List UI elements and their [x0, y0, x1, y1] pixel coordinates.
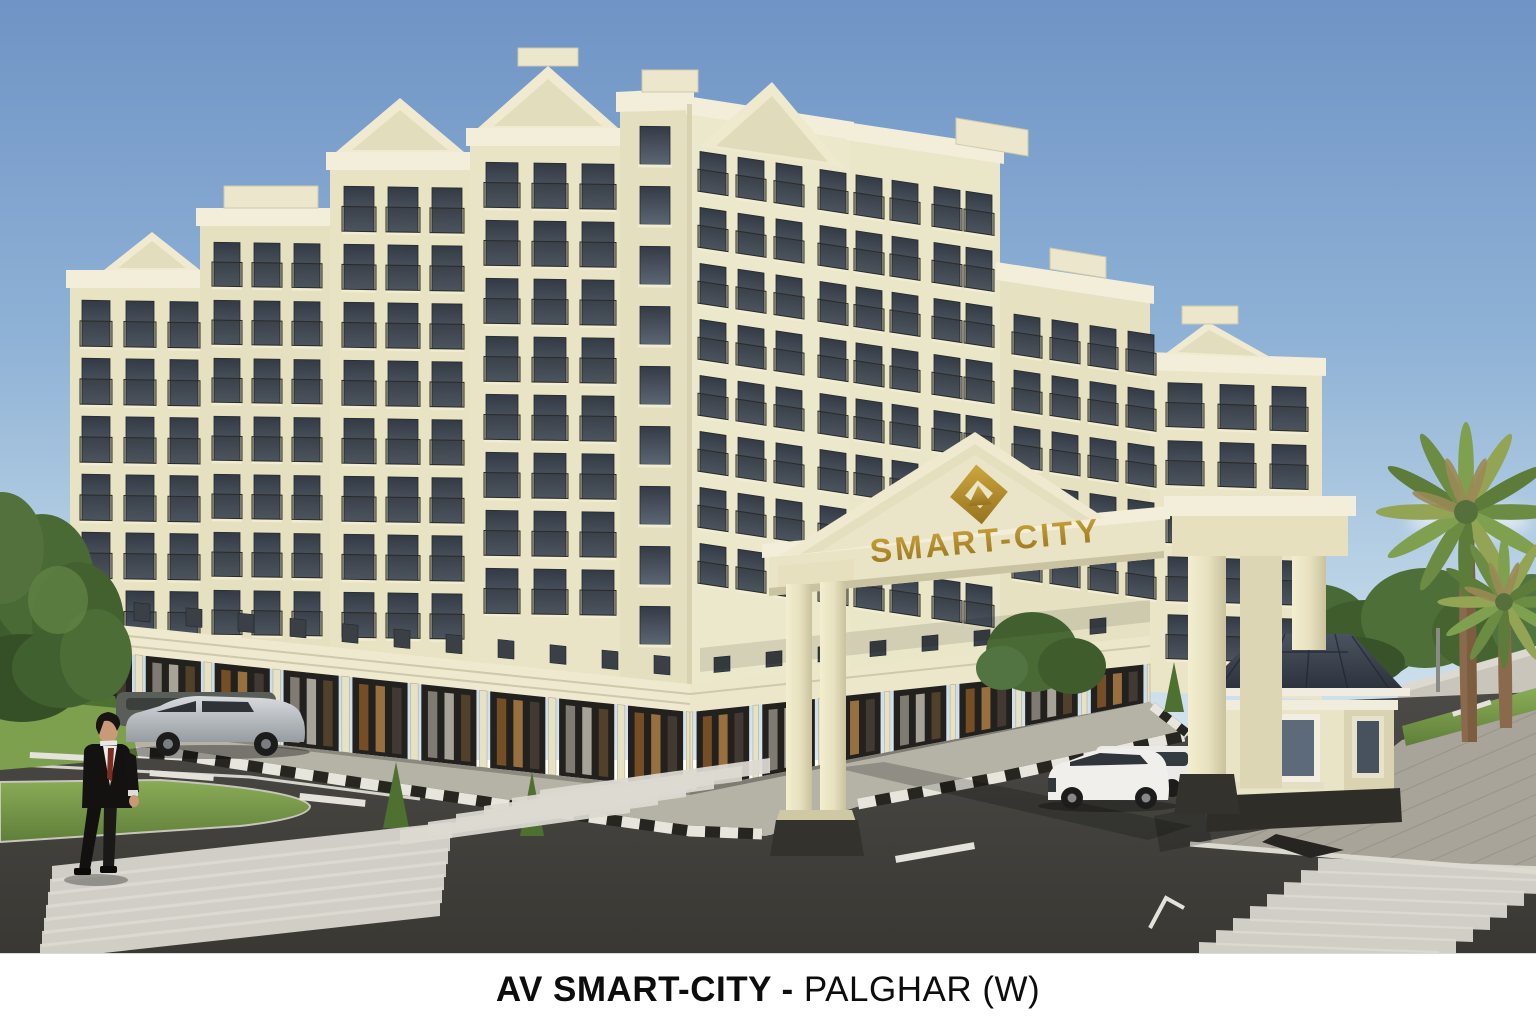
balcony-railing	[430, 556, 464, 581]
shop-pilaster	[342, 676, 349, 753]
balcony-railing	[168, 322, 200, 348]
block-a2-parapet	[224, 186, 318, 208]
gate-pier	[1240, 556, 1282, 788]
balcony-railing	[1012, 332, 1042, 358]
caption-location: PALGHAR (W)	[804, 970, 1040, 1010]
balcony-railing	[80, 495, 112, 521]
balcony-railing	[698, 337, 728, 363]
balcony-railing	[386, 497, 420, 522]
window	[550, 645, 566, 665]
balcony-railing	[1126, 405, 1156, 431]
balcony-railing	[736, 399, 766, 425]
shop-display-art	[866, 699, 875, 753]
parked-vehicles-left	[116, 692, 310, 759]
balcony-railing	[252, 553, 282, 578]
shop-display-art	[635, 712, 644, 781]
balcony-railing	[484, 588, 520, 613]
balcony-railing	[80, 321, 112, 347]
shop-display-art	[428, 691, 437, 758]
balcony-railing	[386, 439, 420, 464]
shop-display-art	[651, 714, 660, 783]
balcony-railing	[342, 322, 376, 347]
right-capital-top	[1164, 496, 1356, 516]
balcony-railing	[580, 358, 616, 383]
balcony-railing	[386, 555, 420, 580]
balcony-railing	[532, 589, 568, 614]
balcony-railing	[698, 505, 728, 531]
window	[640, 426, 670, 464]
balcony-railing	[854, 361, 884, 387]
balcony-railing	[580, 532, 616, 557]
balcony-railing	[342, 496, 376, 521]
balcony-railing	[1218, 462, 1256, 488]
caption-project-name: AV SMART-CITY -	[496, 970, 804, 1010]
balcony-railing	[818, 187, 848, 213]
caption-bar: AV SMART-CITY - PALGHAR (W)	[0, 953, 1536, 1024]
balcony-railing	[1270, 464, 1308, 490]
window	[640, 306, 670, 344]
balcony-railing	[818, 411, 848, 437]
shop-pilaster	[617, 705, 624, 783]
window-grid-a2	[212, 242, 322, 639]
shop-display-art	[307, 678, 316, 745]
balcony-railing	[818, 355, 848, 381]
column-plinth	[1174, 774, 1240, 814]
balcony-railing	[580, 590, 616, 615]
balcony-railing	[484, 182, 520, 207]
balcony-railing	[386, 265, 420, 290]
balcony-railing	[890, 254, 920, 280]
balcony-railing	[430, 324, 464, 349]
balcony-railing	[698, 449, 728, 475]
block-b2-cap	[518, 48, 578, 66]
shop-pilaster	[480, 690, 487, 767]
balcony-railing	[212, 610, 242, 635]
window	[640, 366, 670, 404]
balcony-railing	[1166, 460, 1204, 486]
cabin-side-window-glass	[1357, 721, 1379, 773]
hand	[129, 795, 139, 807]
balcony-railing	[342, 206, 376, 231]
balcony-railing	[430, 382, 464, 407]
window-sill	[638, 524, 672, 527]
roof-fascia	[1196, 688, 1410, 696]
balcony-railing	[736, 455, 766, 481]
balcony-railing	[532, 415, 568, 440]
gate-column-rear	[1292, 556, 1326, 650]
balcony-railing	[736, 567, 766, 593]
balcony-railing	[292, 437, 322, 462]
wheel-hub	[1142, 794, 1151, 803]
balcony-railing	[698, 281, 728, 307]
balcony-railing	[124, 554, 156, 580]
balcony-railing	[580, 184, 616, 209]
car-shadow	[1038, 800, 1178, 812]
balcony-railing	[774, 181, 804, 207]
balcony-railing	[212, 262, 242, 287]
balcony-railing	[774, 405, 804, 431]
balcony-railing	[932, 204, 962, 230]
shop-display-art	[376, 686, 385, 753]
balcony-railing	[484, 298, 520, 323]
balcony-railing	[854, 249, 884, 275]
balcony-railing	[1088, 567, 1118, 593]
balcony-railing	[252, 495, 282, 520]
window	[640, 126, 670, 164]
block-a2-cornice	[196, 208, 334, 226]
balcony-railing	[1050, 449, 1080, 475]
rendering-canvas: SMART-CITY	[0, 0, 1536, 953]
balcony-railing	[168, 554, 200, 580]
balcony-railing	[1166, 402, 1204, 428]
window-sill	[638, 644, 672, 647]
shop-display-art	[982, 687, 991, 731]
balcony-railing	[342, 438, 376, 463]
shop-display-art	[359, 684, 368, 751]
balcony-railing	[484, 356, 520, 381]
balcony-railing	[212, 378, 242, 403]
balcony-railing	[342, 554, 376, 579]
balcony-railing	[774, 237, 804, 263]
balcony-railing	[854, 417, 884, 443]
balcony-railing	[580, 474, 616, 499]
shop-display-art	[1129, 671, 1138, 702]
balcony-railing	[1270, 406, 1308, 432]
balcony-railing	[430, 440, 464, 465]
balcony-railing	[1050, 393, 1080, 419]
pedestrian-shadow	[64, 874, 128, 886]
balcony-railing	[964, 265, 994, 291]
balcony-railing	[532, 183, 568, 208]
shop-display-art	[850, 700, 859, 755]
window	[238, 613, 254, 633]
balcony-railing	[168, 438, 200, 464]
corner-edge	[687, 104, 692, 708]
window-sill	[638, 404, 672, 407]
shoe	[74, 868, 91, 875]
balcony-railing	[532, 531, 568, 556]
corner-pier-cap	[642, 70, 698, 92]
wheel-hub	[1068, 794, 1077, 803]
balcony-railing	[212, 320, 242, 345]
balcony-railing	[124, 322, 156, 348]
balcony-railing	[124, 496, 156, 522]
balcony-railing	[818, 243, 848, 269]
balcony-railing	[1012, 388, 1042, 414]
balcony-railing	[698, 225, 728, 251]
balcony-railing	[532, 473, 568, 498]
balcony-railing	[292, 321, 322, 346]
block-a1-cornice	[66, 270, 204, 288]
balcony-railing	[292, 263, 322, 288]
gate-column-right	[1188, 556, 1226, 780]
shop-pilaster	[1147, 664, 1150, 703]
balcony-railing	[698, 393, 728, 419]
shop-display-art	[566, 705, 575, 773]
shoe	[100, 866, 117, 873]
window	[654, 655, 670, 675]
balcony-railing	[890, 310, 920, 336]
balcony-railing	[252, 321, 282, 346]
gate-column-left-b	[820, 582, 846, 818]
car-silver-window	[202, 701, 254, 712]
shop-display-art	[444, 693, 453, 760]
shop-display-art	[323, 680, 332, 747]
balcony-railing	[698, 169, 728, 195]
balcony-railing	[484, 240, 520, 265]
balcony-railing	[430, 266, 464, 291]
shop-display-art	[916, 694, 925, 743]
balcony-railing	[212, 436, 242, 461]
window	[290, 618, 306, 638]
shop-pilaster	[411, 683, 418, 760]
balcony-railing	[386, 323, 420, 348]
palm-crown-center	[1454, 500, 1478, 524]
shop-pilaster	[884, 691, 890, 753]
balcony-railing	[342, 380, 376, 405]
window-sill	[638, 584, 672, 587]
balcony-railing	[854, 193, 884, 219]
balcony-railing	[1088, 399, 1118, 425]
shop-display-art	[461, 694, 470, 762]
balcony-railing	[292, 379, 322, 404]
shop-display-art	[530, 701, 539, 769]
balcony-railing	[964, 321, 994, 347]
balcony-railing	[532, 357, 568, 382]
window	[498, 639, 514, 659]
window	[602, 650, 618, 670]
window	[134, 603, 150, 623]
light-pole	[1436, 628, 1440, 692]
cuff	[128, 790, 138, 796]
balcony-railing	[386, 381, 420, 406]
car-shadow	[120, 745, 310, 759]
balcony-railing	[1218, 404, 1256, 430]
balcony-railing	[168, 496, 200, 522]
balcony-railing	[932, 596, 962, 622]
balcony-railing	[890, 590, 920, 616]
balcony-railing	[168, 380, 200, 406]
window	[640, 186, 670, 224]
window-sill	[638, 224, 672, 227]
collar	[100, 740, 117, 746]
shop-pilaster	[950, 684, 956, 740]
cabin-cornice	[1210, 700, 1398, 710]
tower-right-cap	[1182, 306, 1238, 324]
balcony-railing	[932, 316, 962, 342]
window	[640, 546, 670, 584]
wheel-hub	[163, 739, 173, 749]
balcony-railing	[80, 437, 112, 463]
balcony-railing	[736, 175, 766, 201]
car-grille	[1048, 778, 1056, 792]
block-b2-cornice	[466, 128, 624, 146]
window-sill	[638, 164, 672, 167]
balcony-railing	[386, 207, 420, 232]
balcony-railing	[1088, 455, 1118, 481]
balcony-railing	[124, 438, 156, 464]
architectural-rendering-frame: SMART-CITY AV SMART-CITY - PALGHAR (W)	[0, 0, 1536, 1024]
balcony-railing	[890, 198, 920, 224]
balcony-railing	[212, 552, 242, 577]
balcony-railing	[430, 498, 464, 523]
column-plinth-left	[770, 820, 864, 856]
balcony-railing	[932, 260, 962, 286]
balcony-railing	[342, 264, 376, 289]
window-sill	[638, 464, 672, 467]
balcony-railing	[736, 343, 766, 369]
balcony-railing	[774, 517, 804, 543]
window	[394, 629, 410, 649]
balcony-railing	[252, 437, 282, 462]
wheel-hub	[261, 739, 271, 749]
balcony-railing	[1126, 349, 1156, 375]
balcony-railing	[890, 422, 920, 448]
balcony-railing	[1088, 343, 1118, 369]
balcony-railing	[580, 300, 616, 325]
balcony-railing	[252, 263, 282, 288]
shop-display-art	[497, 698, 506, 766]
balcony-railing	[252, 379, 282, 404]
balcony-railing	[854, 305, 884, 331]
shop-display-art	[900, 695, 909, 746]
balcony-railing	[580, 416, 616, 441]
balcony-railing	[252, 611, 282, 636]
balcony-railing	[484, 414, 520, 439]
balcony-railing	[1050, 337, 1080, 363]
balcony-railing	[1126, 573, 1156, 599]
balcony-railing	[964, 209, 994, 235]
balcony-railing	[736, 287, 766, 313]
balcony-railing	[484, 472, 520, 497]
balcony-railing	[774, 293, 804, 319]
shop-pilaster	[549, 697, 556, 775]
window	[186, 608, 202, 628]
balcony-railing	[698, 561, 728, 587]
balcony-railing	[932, 372, 962, 398]
window	[446, 634, 462, 654]
shop-display-art	[513, 700, 522, 768]
balcony-railing	[818, 467, 848, 493]
shop-display-art	[582, 707, 591, 775]
balcony-railing	[736, 231, 766, 257]
right-capital	[1172, 516, 1348, 556]
block-b1-cornice	[326, 152, 474, 170]
balcony-railing	[292, 553, 322, 578]
balcony-railing	[212, 494, 242, 519]
balcony-railing	[1126, 461, 1156, 487]
window-sill	[638, 344, 672, 347]
balcony-railing	[774, 461, 804, 487]
balcony-railing	[484, 530, 520, 555]
shop-display-art	[966, 688, 975, 733]
shop-display-art	[392, 687, 401, 754]
balcony-railing	[580, 242, 616, 267]
window	[640, 246, 670, 284]
window	[342, 624, 358, 644]
balcony-railing	[736, 511, 766, 537]
window-sill	[638, 284, 672, 287]
window-grid-pier	[638, 126, 672, 647]
balcony-railing	[818, 299, 848, 325]
balcony-railing	[532, 299, 568, 324]
gate-column-left-a	[786, 584, 812, 818]
shop-display-art	[599, 709, 608, 777]
balcony-railing	[532, 241, 568, 266]
balcony-railing	[430, 208, 464, 233]
balcony-railing	[854, 585, 884, 611]
balcony-railing	[292, 495, 322, 520]
palm-crown-center	[1495, 593, 1513, 611]
balcony-railing	[774, 349, 804, 375]
balcony-railing	[964, 377, 994, 403]
shop-display-art	[1113, 673, 1122, 705]
balcony-railing	[80, 379, 112, 405]
window	[640, 486, 670, 524]
shop-display-art	[932, 692, 941, 740]
window	[640, 606, 670, 644]
shop-display-art	[997, 685, 1006, 727]
balcony-railing	[890, 366, 920, 392]
balcony-railing	[124, 380, 156, 406]
